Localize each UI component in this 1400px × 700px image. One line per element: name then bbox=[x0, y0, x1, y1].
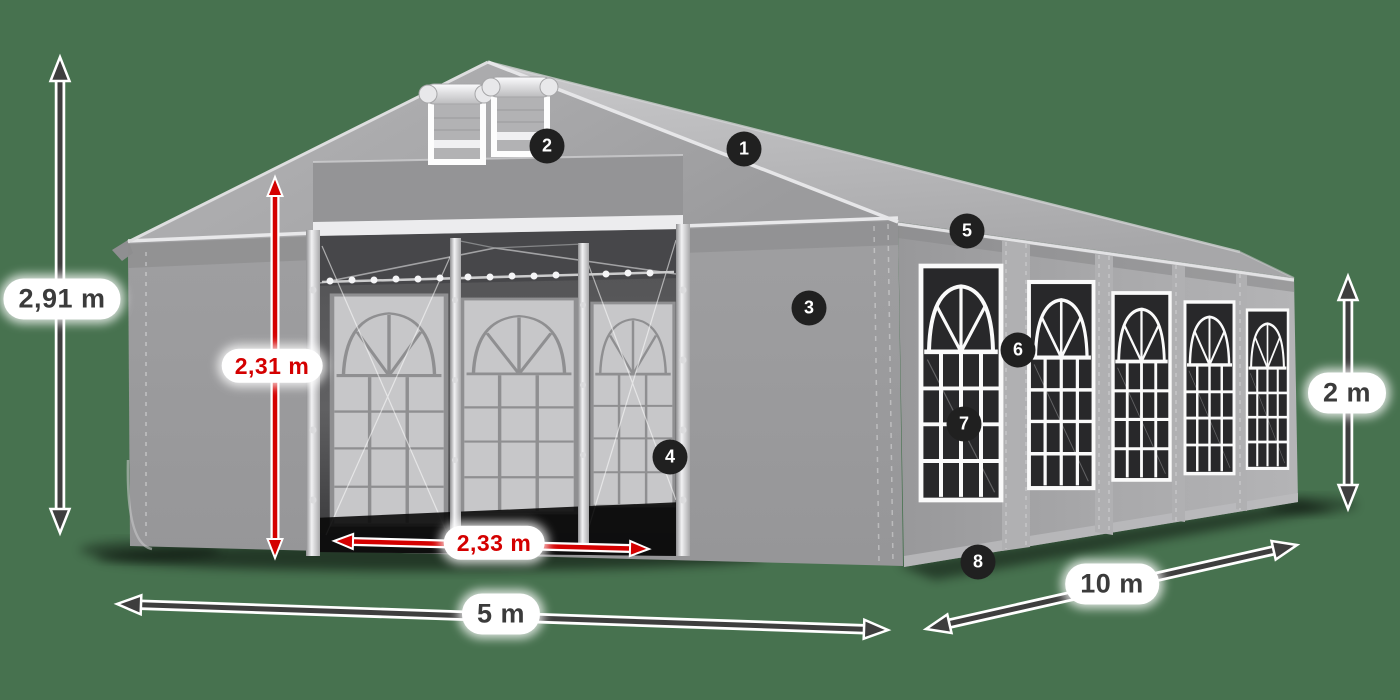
callout-badge-1[interactable]: 1 bbox=[727, 132, 762, 167]
callout-badge-5[interactable]: 5 bbox=[950, 214, 985, 249]
tent-dimension-diagram: 2,91 m 2,31 m 2,33 m 5 m 10 m 2 m 1 2 3 … bbox=[0, 0, 1400, 700]
side-window-1 bbox=[921, 266, 1001, 500]
callout-badge-4[interactable]: 4 bbox=[653, 440, 688, 475]
roof-vent-1 bbox=[419, 84, 493, 162]
entrance-opening bbox=[313, 229, 683, 556]
side-window-4 bbox=[1185, 302, 1234, 474]
dimension-label-total-height: 2,91 m bbox=[5, 280, 118, 317]
callout-badge-8[interactable]: 8 bbox=[961, 545, 996, 580]
dimension-label-front-width: 5 m bbox=[464, 595, 538, 632]
callout-badge-6[interactable]: 6 bbox=[1001, 333, 1036, 368]
entrance-gable-panel bbox=[313, 155, 683, 236]
side-window-2 bbox=[1029, 282, 1094, 488]
side-window-5 bbox=[1247, 310, 1288, 468]
dimension-label-entrance-width: 2,33 m bbox=[446, 528, 543, 558]
side-window-3 bbox=[1113, 293, 1170, 480]
dimension-label-side-wall-height: 2 m bbox=[1310, 374, 1384, 411]
callout-badge-7[interactable]: 7 bbox=[947, 407, 982, 442]
callout-badge-3[interactable]: 3 bbox=[792, 291, 827, 326]
dimension-label-side-length: 10 m bbox=[1067, 565, 1157, 602]
tent-illustration bbox=[0, 0, 1400, 700]
dimension-label-entrance-height: 2,31 m bbox=[224, 351, 321, 381]
interior-window-2 bbox=[462, 299, 576, 513]
callout-badge-2[interactable]: 2 bbox=[530, 129, 565, 164]
